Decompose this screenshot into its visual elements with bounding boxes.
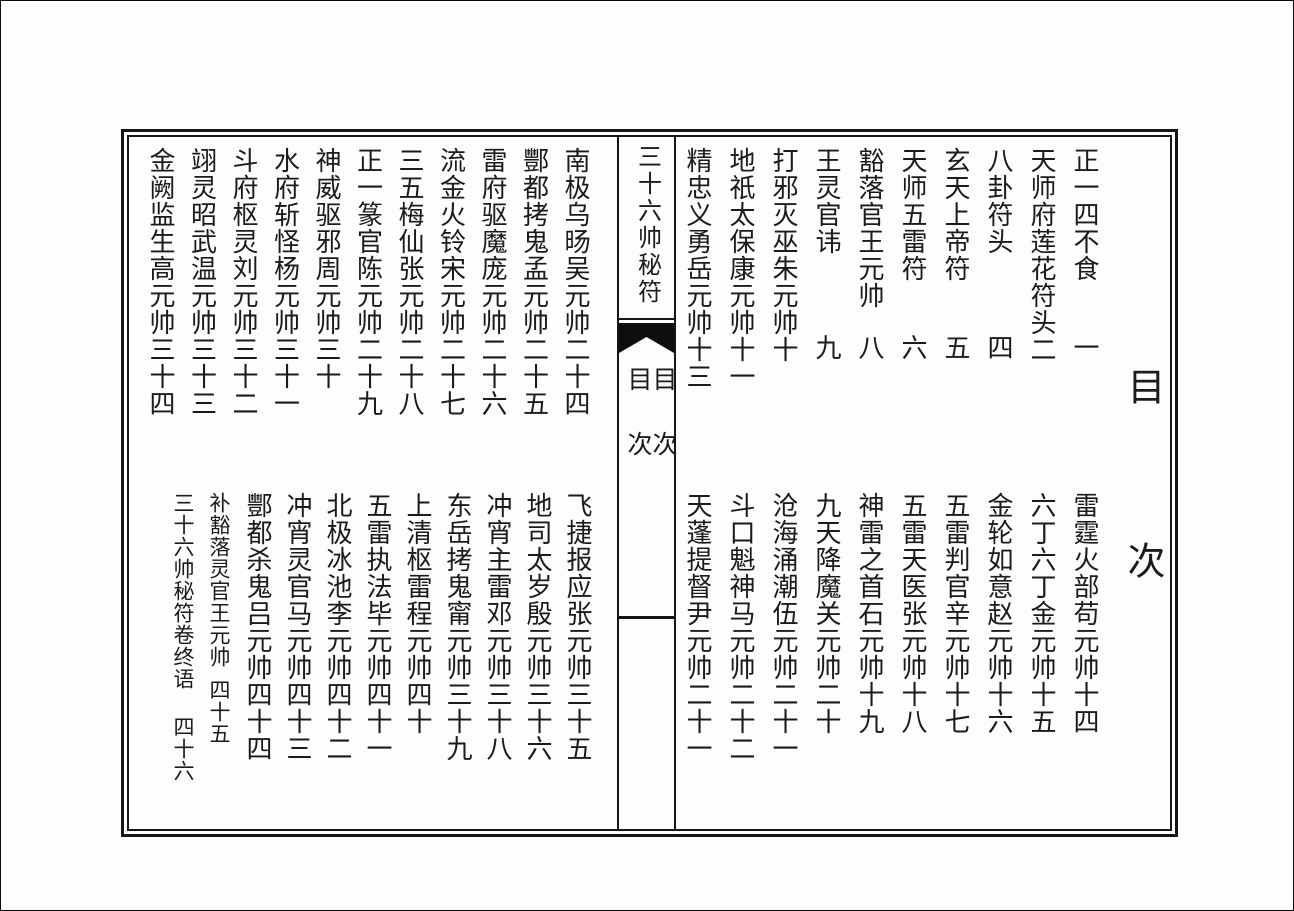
entry-page-number: 二十五	[520, 336, 549, 417]
entry-title: 地司太岁殷元帅	[517, 492, 557, 681]
entry-page-number: 十八	[898, 681, 927, 735]
entry-page-number: 二十一	[683, 681, 712, 762]
entry-page-number: 二十四	[561, 336, 590, 417]
left-upper-section: 南极乌旸吴元帅二十四 酆都拷鬼孟元帅二十五 雷府驱魔庞元帅二十六 流金火铃宋元帅…	[140, 147, 597, 417]
toc-entry: 东岳拷鬼甯元帅三十九	[437, 492, 477, 782]
entry-page-number: 三十六	[523, 681, 552, 762]
entry-title: 打邪灭巫朱元帅	[762, 147, 805, 336]
entry-page-number: 二十二	[726, 681, 755, 762]
entry-title: 沧海涌潮伍元帅	[762, 492, 805, 681]
toc-title-char: 目	[1121, 367, 1163, 405]
entry-page-number: 十	[769, 336, 798, 363]
entry-page-number: 三十一	[271, 336, 300, 417]
toc-entry: 金阙监生高元帅三十四	[140, 147, 182, 417]
toc-entry: 雷府驱魔庞元帅二十六	[472, 147, 514, 417]
toc-entry: 冲宵灵官马元帅四十三	[277, 492, 317, 782]
entry-title: 酆都杀鬼吕元帅	[237, 492, 277, 681]
entry-page-number: 四十四	[243, 681, 272, 762]
entry-page-number: 四十一	[363, 681, 392, 762]
entry-page-number: 二	[1027, 336, 1056, 363]
entry-title: 流金火铃宋元帅	[430, 147, 472, 336]
toc-entry: 北极冰池李元帅四十二	[317, 492, 357, 782]
toc-entry: 八卦符头四	[977, 147, 1020, 390]
outer-border: 南极乌旸吴元帅二十四 酆都拷鬼孟元帅二十五 雷府驱魔庞元帅二十六 流金火铃宋元帅…	[121, 129, 1178, 837]
left-page: 南极乌旸吴元帅二十四 酆都拷鬼孟元帅二十五 雷府驱魔庞元帅二十六 流金火铃宋元帅…	[129, 137, 617, 829]
toc-entry: 九天降魔关元帅二十	[805, 492, 848, 762]
spine-label-char: 目	[649, 366, 676, 391]
entry-title: 五雷判官辛元帅	[934, 492, 977, 681]
toc-entry: 金轮如意赵元帅十六	[977, 492, 1020, 762]
toc-entry: 沧海涌潮伍元帅二十一	[762, 492, 805, 762]
entry-title: 五雷执法毕元帅	[357, 492, 397, 681]
entry-page-number: 三十四	[146, 336, 175, 417]
toc-entry: 南极乌旸吴元帅二十四	[555, 147, 597, 417]
toc-entry: 神威驱邪周元帅三十	[306, 147, 348, 417]
fishtail-mark	[619, 323, 674, 355]
entry-title: 冲宵灵官马元帅	[277, 492, 317, 681]
entry-title: 神雷之首石元帅	[848, 492, 891, 681]
entry-title: 神威驱邪周元帅	[306, 147, 348, 336]
entry-page-number: 二十一	[769, 681, 798, 762]
toc-entry: 雷霆火部苟元帅十四	[1063, 492, 1106, 762]
scanned-book-page: 南极乌旸吴元帅二十四 酆都拷鬼孟元帅二十五 雷府驱魔庞元帅二十六 流金火铃宋元帅…	[0, 0, 1294, 911]
entry-title: 天蓬提督尹元帅	[676, 492, 719, 681]
entry-title: 六丁六丁金元帅	[1020, 492, 1063, 681]
toc-entry: 水府斩怪杨元帅三十一	[264, 147, 306, 417]
toc-entry: 三五梅仙张元帅二十八	[389, 147, 431, 417]
entry-page-number: 六	[898, 334, 927, 361]
entry-title: 天师五雷符	[891, 147, 934, 334]
spine-divider-line	[619, 616, 674, 619]
toc-entry: 地祇太保康元帅十一	[719, 147, 762, 390]
toc-title-char: 次	[1120, 541, 1164, 579]
entry-title: 王灵官讳	[805, 147, 848, 334]
entry-title: 金阙监生高元帅	[140, 147, 182, 336]
entry-title: 冲宵主雷邓元帅	[477, 492, 517, 681]
entry-title: 三五梅仙张元帅	[389, 147, 431, 336]
entry-title: 五雷天医张元帅	[891, 492, 934, 681]
entry-title: 金轮如意赵元帅	[977, 492, 1020, 681]
entry-page-number: 十六	[984, 681, 1013, 735]
entry-page-number: 二十九	[354, 336, 383, 417]
toc-entry: 酆都拷鬼孟元帅二十五	[513, 147, 555, 417]
spine-rule-line	[619, 318, 674, 320]
entry-page-number: 五	[941, 334, 970, 361]
entry-title: 地祇太保康元帅	[719, 147, 762, 336]
entry-title: 正一篆官陈元帅	[347, 147, 389, 336]
entry-title: 斗府枢灵刘元帅	[223, 147, 265, 336]
entry-title: 精忠义勇岳元帅	[676, 147, 719, 336]
entry-title: 酆都拷鬼孟元帅	[513, 147, 555, 336]
spine-book-title: 三十六帅秘符	[635, 144, 659, 306]
toc-entry: 五雷执法毕元帅四十一	[357, 492, 397, 782]
toc-entry: 天蓬提督尹元帅二十一	[676, 492, 719, 762]
entry-page-number: 四十五	[207, 679, 231, 745]
toc-entry: 玄天上帝符五	[934, 147, 977, 390]
entry-page-number: 二十	[812, 681, 841, 735]
toc-entry: 上清枢雷程元帅四十	[397, 492, 437, 782]
entry-title: 正一四不食	[1063, 147, 1106, 334]
toc-entry: 王灵官讳九	[805, 147, 848, 390]
entry-title: 斗口魁神马元帅	[719, 492, 762, 681]
inner-border: 南极乌旸吴元帅二十四 酆都拷鬼孟元帅二十五 雷府驱魔庞元帅二十六 流金火铃宋元帅…	[127, 135, 1172, 831]
toc-entry: 六丁六丁金元帅十五	[1020, 492, 1063, 762]
entry-page-number: 四	[984, 334, 1013, 361]
entry-page-number: 三十九	[443, 681, 472, 762]
entry-page-number: 四十三	[283, 681, 312, 762]
entry-page-number: 二十七	[437, 336, 466, 417]
toc-entry: 神雷之首石元帅十九	[848, 492, 891, 762]
entry-page-number: 三十三	[188, 336, 217, 417]
entry-title: 上清枢雷程元帅	[397, 492, 437, 681]
spine-label-right: 目次	[650, 366, 675, 456]
entry-title: 豁落官王元帅	[848, 147, 891, 334]
spine-label-char: 目	[624, 366, 651, 391]
toc-entry: 斗口魁神马元帅二十二	[719, 492, 762, 762]
entry-title: 雷霆火部苟元帅	[1063, 492, 1106, 681]
entry-title: 三十六帅秘符卷终语	[165, 492, 201, 690]
entry-page-number: 三十五	[563, 681, 592, 762]
right-page: 目次 正一四不食一 天师府莲花符头二 八卦符头四 玄天上帝符五 天师五雷符六 豁…	[676, 137, 1170, 829]
toc-entry: 三十六帅秘符卷终语四十六	[165, 492, 201, 782]
toc-entry: 斗府枢灵刘元帅三十二	[223, 147, 265, 417]
entry-page-number: 四十六	[165, 716, 201, 782]
spine-column: 三十六帅秘符 目次 目次	[617, 137, 676, 829]
entry-title: 飞捷报应张元帅	[557, 492, 597, 681]
toc-entry: 五雷判官辛元帅十七	[934, 492, 977, 762]
toc-entry: 打邪灭巫朱元帅十	[762, 147, 805, 390]
toc-entry: 飞捷报应张元帅三十五	[557, 492, 597, 782]
toc-entry: 天师五雷符六	[891, 147, 934, 390]
toc-entry: 补豁落灵官王元帅四十五	[201, 492, 237, 782]
toc-entry: 冲宵主雷邓元帅三十八	[477, 492, 517, 782]
entry-title: 玄天上帝符	[934, 147, 977, 334]
toc-entry: 豁落官王元帅八	[848, 147, 891, 390]
toc-entry: 地司太岁殷元帅三十六	[517, 492, 557, 782]
toc-entry: 天师府莲花符头二	[1020, 147, 1063, 390]
entry-title: 八卦符头	[977, 147, 1020, 334]
entry-page-number: 十七	[941, 681, 970, 735]
entry-page-number: 四十	[403, 681, 432, 735]
toc-entry: 正一篆官陈元帅二十九	[347, 147, 389, 417]
entry-page-number: 二十八	[395, 336, 424, 417]
entry-page-number: 三十二	[229, 336, 258, 417]
toc-entry: 酆都杀鬼吕元帅四十四	[237, 492, 277, 782]
entry-title: 南极乌旸吴元帅	[555, 147, 597, 336]
entry-page-number: 十三	[683, 336, 712, 390]
entry-page-number: 三十八	[483, 681, 512, 762]
toc-entry: 正一四不食一	[1063, 147, 1106, 390]
left-lower-section: 飞捷报应张元帅三十五 地司太岁殷元帅三十六 冲宵主雷邓元帅三十八 东岳拷鬼甯元帅…	[165, 492, 597, 782]
spine-label-char: 次	[650, 431, 675, 456]
toc-entry: 精忠义勇岳元帅十三	[676, 147, 719, 390]
spine-label-char: 次	[625, 431, 650, 456]
entry-page-number: 八	[855, 334, 884, 361]
entry-title: 天师府莲花符头	[1020, 147, 1063, 336]
entry-title: 翊灵昭武温元帅	[181, 147, 223, 336]
entry-title: 九天降魔关元帅	[805, 492, 848, 681]
entry-page-number: 十四	[1070, 681, 1099, 735]
toc-page-title: 目次	[1120, 367, 1164, 579]
entry-page-number: 九	[812, 334, 841, 361]
entry-page-number: 一	[1070, 334, 1099, 361]
spine-label-left: 目次	[625, 366, 650, 456]
toc-entry: 流金火铃宋元帅二十七	[430, 147, 472, 417]
entry-title: 北极冰池李元帅	[317, 492, 357, 681]
entry-page-number: 四十二	[323, 681, 352, 762]
toc-entry: 五雷天医张元帅十八	[891, 492, 934, 762]
entry-title: 东岳拷鬼甯元帅	[437, 492, 477, 681]
right-upper-section: 正一四不食一 天师府莲花符头二 八卦符头四 玄天上帝符五 天师五雷符六 豁落官王…	[676, 147, 1106, 390]
entry-page-number: 二十六	[478, 336, 507, 417]
toc-entry: 翊灵昭武温元帅三十三	[181, 147, 223, 417]
entry-title: 雷府驱魔庞元帅	[472, 147, 514, 336]
entry-page-number: 十九	[855, 681, 884, 735]
entry-title: 补豁落灵官王元帅	[201, 492, 237, 679]
right-lower-section: 雷霆火部苟元帅十四 六丁六丁金元帅十五 金轮如意赵元帅十六 五雷判官辛元帅十七 …	[676, 492, 1106, 762]
spine-section-labels: 目次 目次	[619, 366, 674, 456]
entry-title: 水府斩怪杨元帅	[264, 147, 306, 336]
entry-page-number: 十五	[1027, 681, 1056, 735]
entry-page-number: 十一	[726, 336, 755, 390]
entry-page-number: 三十	[312, 336, 341, 390]
